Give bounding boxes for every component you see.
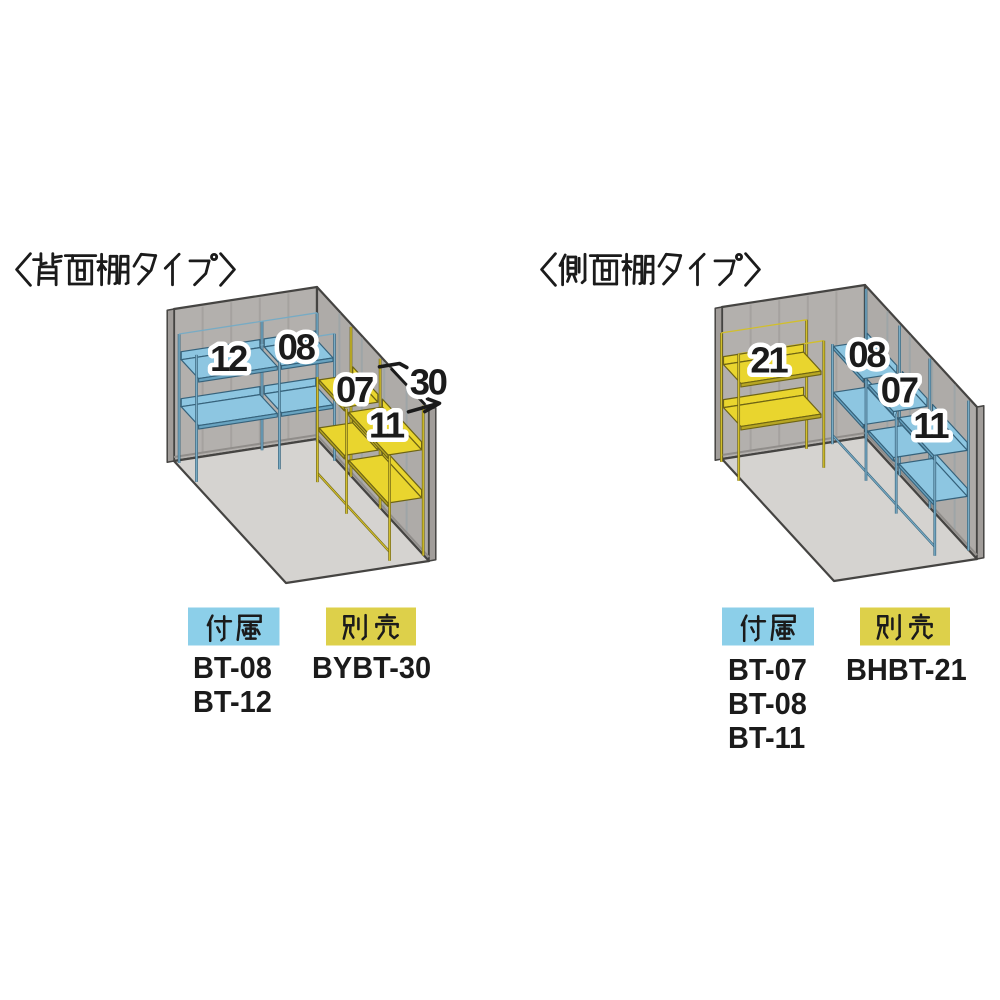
svg-text:11: 11 — [369, 405, 405, 446]
svg-text:11: 11 — [913, 405, 949, 446]
svg-text:08: 08 — [278, 327, 316, 368]
svg-text:BHBT-21: BHBT-21 — [846, 653, 967, 687]
svg-text:BT-08: BT-08 — [728, 687, 807, 721]
svg-text:21: 21 — [750, 340, 788, 381]
svg-text:BT-12: BT-12 — [193, 685, 272, 719]
svg-text:30: 30 — [410, 362, 447, 403]
svg-text:BT-08: BT-08 — [193, 651, 272, 685]
svg-text:08: 08 — [848, 334, 886, 375]
svg-text:07: 07 — [881, 370, 918, 411]
svg-text:BT-11: BT-11 — [728, 721, 805, 755]
svg-text:BYBT-30: BYBT-30 — [312, 651, 431, 685]
svg-text:07: 07 — [336, 369, 373, 410]
svg-text:12: 12 — [210, 338, 247, 379]
svg-text:BT-07: BT-07 — [728, 653, 807, 687]
